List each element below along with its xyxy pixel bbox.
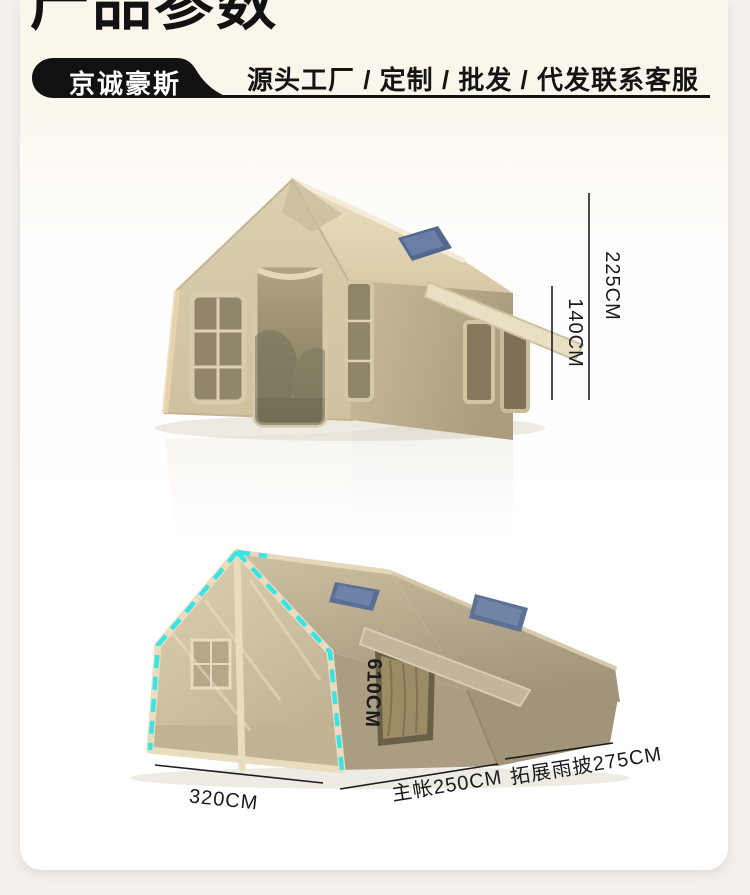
tent1-dimensions: 225CM 140CM [552, 193, 623, 400]
dim-label-ridge-length: 610CM [361, 658, 385, 728]
tent1-illustration [165, 178, 583, 440]
tent-photo-side-view: 610CM 320CM 主帐250CM 拓展雨披275CM [20, 540, 728, 870]
content-card: 产品参数 京诚豪斯 源头工厂 / 定制 / 批发 / 代发联系客服 [20, 0, 728, 870]
header-divider [206, 95, 710, 98]
dim-label-total-height: 225CM [601, 251, 623, 320]
product-detail-page: { "header": { "title": "产品参数", "brand": … [0, 0, 750, 895]
reflection-fade [20, 425, 728, 540]
page-title: 产品参数 [30, 0, 278, 34]
tent1-front-window-left [192, 295, 244, 402]
dim-label-front-width: 320CM [188, 785, 259, 814]
tent-photo-front-view: 225CM 140CM [20, 120, 728, 540]
brand-name: 京诚豪斯 [60, 64, 190, 101]
brand-badge: 京诚豪斯 [30, 57, 230, 99]
tent1-front-door [242, 265, 340, 425]
tagline: 源头工厂 / 定制 / 批发 / 代发联系客服 [236, 60, 710, 97]
dim-label-eave-height: 140CM [564, 298, 586, 367]
tent1-front-window-right [346, 282, 372, 400]
tent1-side-window [465, 322, 493, 402]
